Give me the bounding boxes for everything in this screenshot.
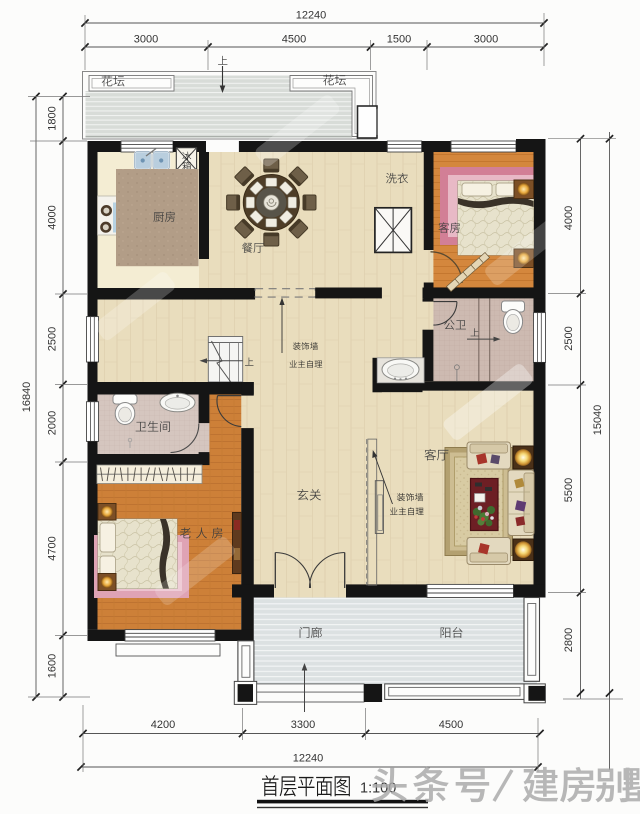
svg-text:15040: 15040: [592, 405, 604, 436]
svg-text:12240: 12240: [296, 10, 327, 22]
svg-text:1800: 1800: [47, 106, 59, 130]
svg-text:4000: 4000: [47, 205, 59, 229]
svg-text:1500: 1500: [387, 34, 411, 46]
svg-text:2000: 2000: [47, 411, 59, 435]
svg-text:3000: 3000: [134, 34, 158, 46]
svg-text:4200: 4200: [151, 719, 175, 731]
svg-text:1600: 1600: [47, 654, 59, 678]
svg-text:16840: 16840: [21, 382, 33, 413]
svg-text:3300: 3300: [291, 719, 315, 731]
svg-text:2500: 2500: [47, 327, 59, 351]
svg-text:4000: 4000: [563, 206, 575, 230]
svg-text:5500: 5500: [563, 478, 575, 502]
svg-text:12240: 12240: [293, 753, 324, 765]
svg-text:2800: 2800: [563, 628, 575, 652]
svg-text:3000: 3000: [474, 34, 498, 46]
svg-text:4700: 4700: [47, 536, 59, 560]
svg-text:2500: 2500: [563, 326, 575, 350]
svg-text:4500: 4500: [439, 719, 463, 731]
svg-text:4500: 4500: [282, 34, 306, 46]
